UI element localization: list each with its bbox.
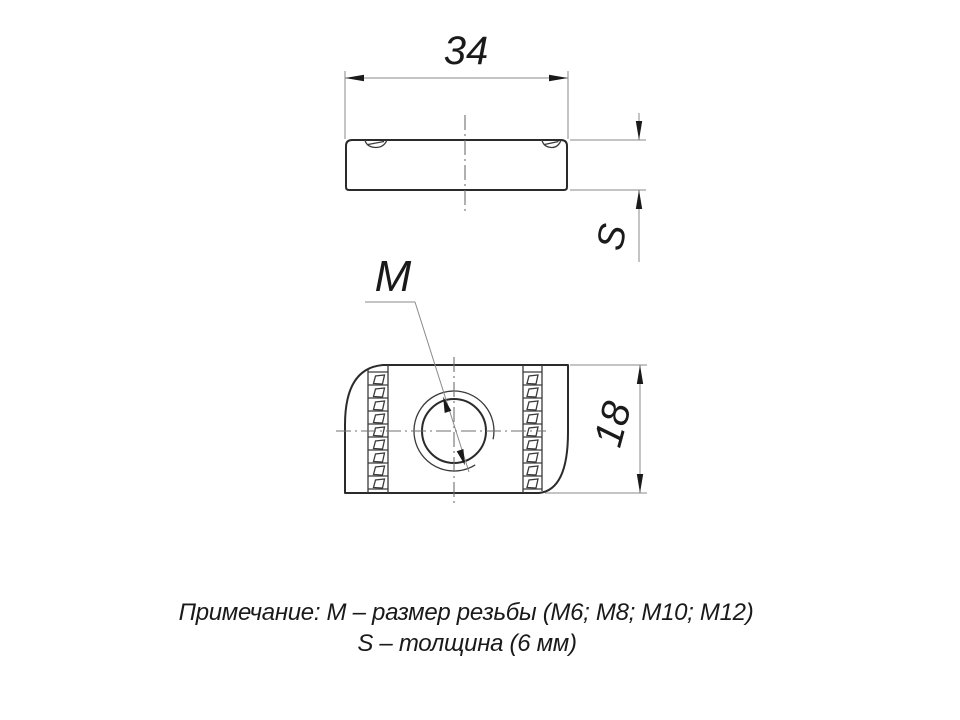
thread-callout: M xyxy=(365,252,469,472)
width-arrow-left xyxy=(345,75,364,81)
note-line-2: S – толщина (6 мм) xyxy=(357,630,576,657)
dimension-height: 18 xyxy=(545,365,647,493)
height-arrow-top xyxy=(637,365,643,384)
knurl-strip-right xyxy=(523,365,542,493)
thickness-dimension-label: S xyxy=(589,221,635,255)
width-dimension-label: 34 xyxy=(444,29,489,73)
knurl-notch-left-facet xyxy=(368,142,384,145)
note-line-1: Примечание: М – размер резьбы (М6; М8; М… xyxy=(179,599,754,626)
note-block: Примечание: М – размер резьбы (М6; М8; М… xyxy=(179,599,754,657)
technical-drawing-canvas: 34 S xyxy=(0,0,960,720)
plan-view xyxy=(336,357,568,505)
thickness-arrow-bottom xyxy=(636,190,642,209)
height-arrow-bottom xyxy=(637,474,643,493)
height-dimension-label: 18 xyxy=(586,396,640,451)
knurl-notch-right-facet xyxy=(545,142,559,145)
knurl-strip-left xyxy=(368,365,388,493)
dimension-width: 34 xyxy=(345,29,568,139)
side-view xyxy=(346,115,567,213)
thread-leader-line xyxy=(415,302,469,472)
width-arrow-right xyxy=(549,75,568,81)
thickness-extension-lines xyxy=(570,140,646,190)
thread-label: M xyxy=(375,252,412,301)
drawing-sheet: 34 S xyxy=(0,0,960,720)
thickness-arrow-top xyxy=(636,121,642,140)
width-extension-lines xyxy=(345,71,568,139)
dimension-thickness: S xyxy=(570,113,646,262)
